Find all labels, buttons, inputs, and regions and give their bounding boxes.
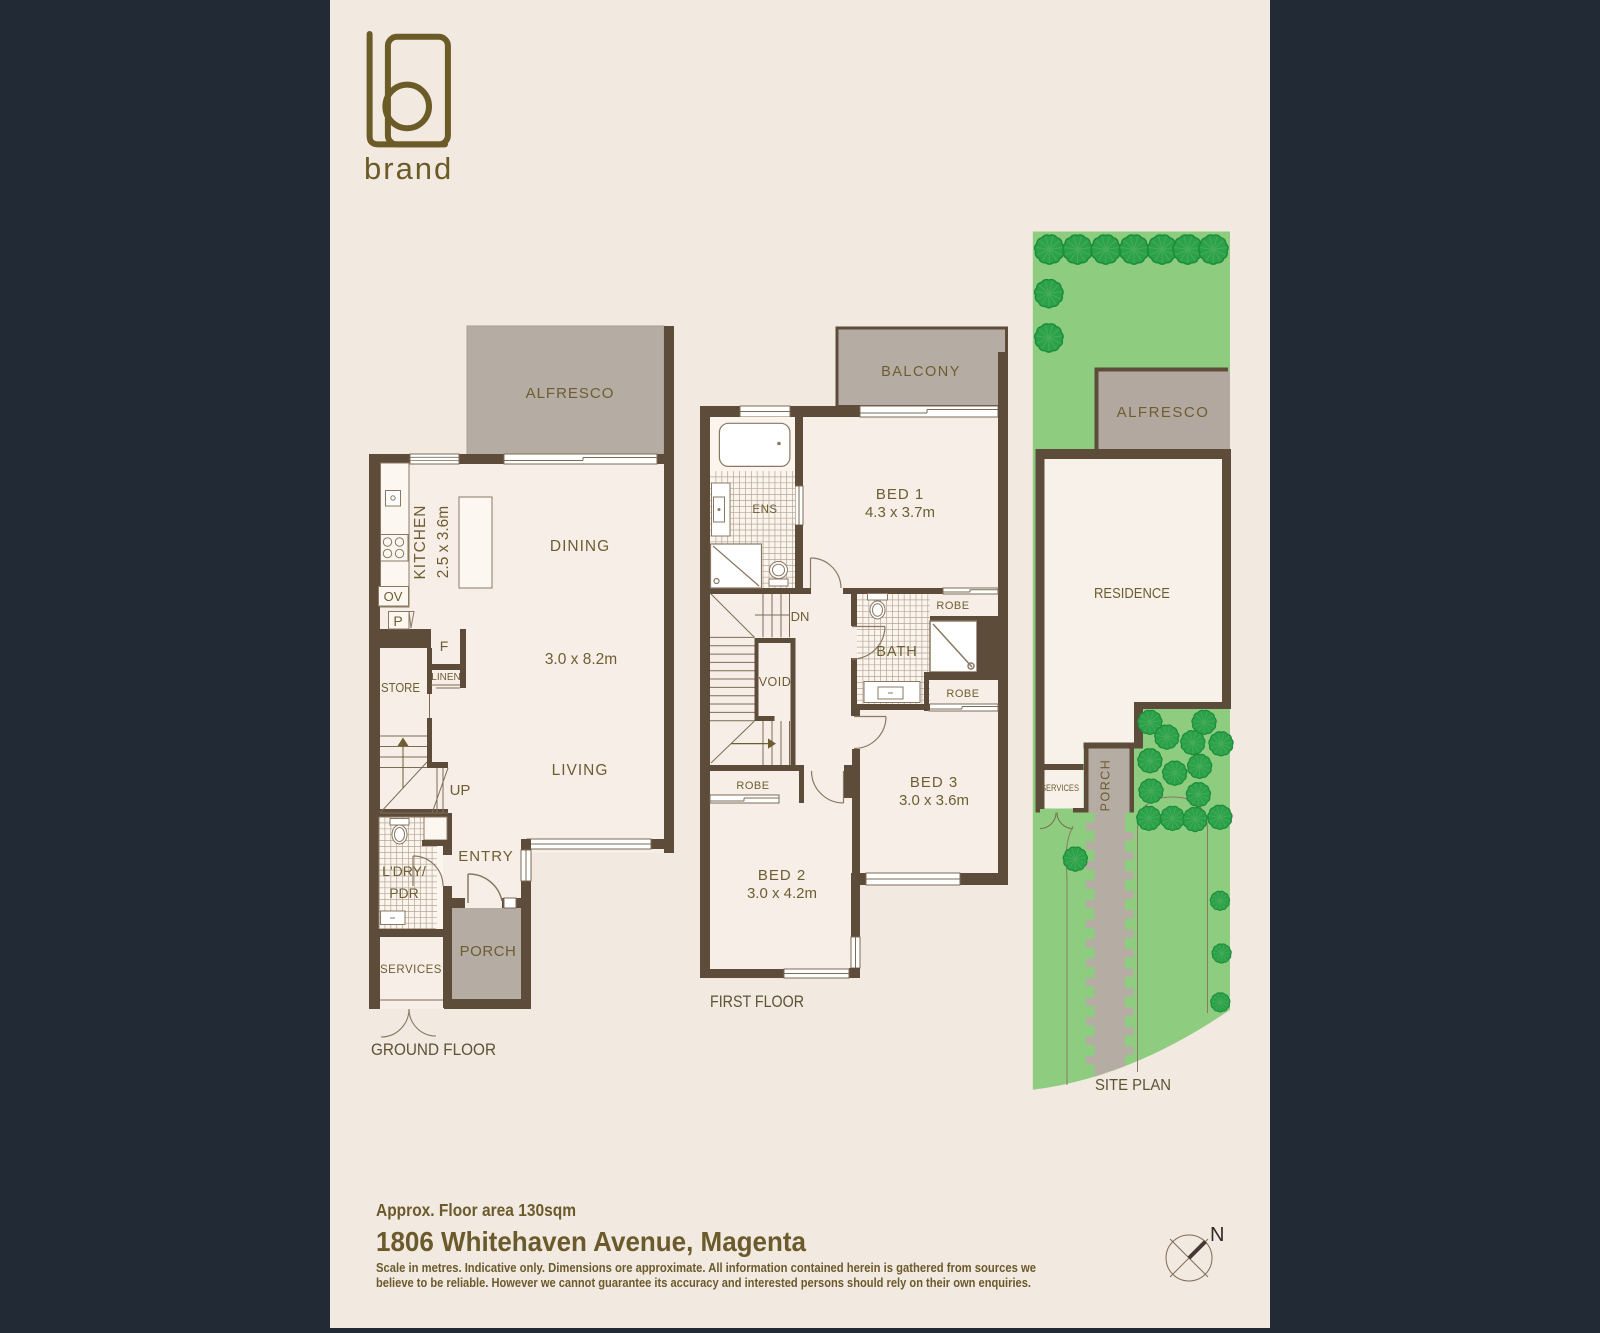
svg-text:PDR: PDR [389,885,419,901]
svg-text:F: F [440,638,449,654]
svg-text:3.0 x 8.2m: 3.0 x 8.2m [545,651,617,668]
svg-text:PORCH: PORCH [460,943,517,960]
svg-text:LIVING: LIVING [552,762,609,779]
svg-text:ROBE: ROBE [946,688,979,700]
svg-text:BED 3: BED 3 [910,774,958,791]
svg-text:KITCHEN: KITCHEN [412,504,429,579]
svg-text:2.5 x 3.6m: 2.5 x 3.6m [435,506,452,578]
svg-text:3.0 x 4.2m: 3.0 x 4.2m [747,885,817,902]
svg-text:VOID: VOID [759,675,792,689]
svg-text:BALCONY: BALCONY [881,364,961,380]
svg-text:PORCH: PORCH [1099,759,1113,812]
svg-text:ENS: ENS [752,504,777,516]
svg-text:ALFRESCO: ALFRESCO [1117,404,1210,421]
svg-text:BED 2: BED 2 [758,867,806,884]
svg-text:OV: OV [384,589,403,604]
svg-text:ENTRY: ENTRY [458,848,514,865]
svg-text:DN: DN [791,609,810,624]
svg-text:N: N [1210,1224,1224,1246]
svg-text:1806 Whitehaven Avenue, Magent: 1806 Whitehaven Avenue, Magenta [376,1226,806,1257]
svg-text:SITE PLAN: SITE PLAN [1095,1077,1171,1094]
svg-text:BATH: BATH [876,644,918,660]
svg-text:FIRST FLOOR: FIRST FLOOR [710,993,804,1011]
svg-text:believe to be reliable. Howeve: believe to be reliable. However we canno… [376,1275,1031,1290]
svg-text:SERVICES: SERVICES [1041,783,1079,793]
svg-text:UP: UP [450,782,471,799]
svg-text:STORE: STORE [381,680,420,695]
svg-text:RESIDENCE: RESIDENCE [1094,585,1170,602]
svg-text:brand: brand [364,151,453,186]
svg-text:ALFRESCO: ALFRESCO [526,385,615,402]
svg-text:ROBE: ROBE [736,780,769,792]
svg-text:DINING: DINING [550,538,610,555]
svg-text:SERVICES: SERVICES [380,964,442,976]
svg-text:LINEN: LINEN [431,672,460,683]
svg-text:3.0 x 3.6m: 3.0 x 3.6m [899,792,969,809]
svg-text:ROBE: ROBE [936,600,969,612]
svg-text:GROUND FLOOR: GROUND FLOOR [371,1041,496,1059]
svg-text:BED 1: BED 1 [876,486,924,503]
svg-text:P: P [393,613,402,629]
svg-text:4.3 x 3.7m: 4.3 x 3.7m [865,504,935,521]
svg-text:Approx. Floor area 130sqm: Approx. Floor area 130sqm [376,1200,576,1220]
svg-text:L'DRY/: L'DRY/ [382,863,426,879]
svg-text:Scale in metres. Indicative on: Scale in metres. Indicative only. Dimens… [376,1260,1036,1275]
